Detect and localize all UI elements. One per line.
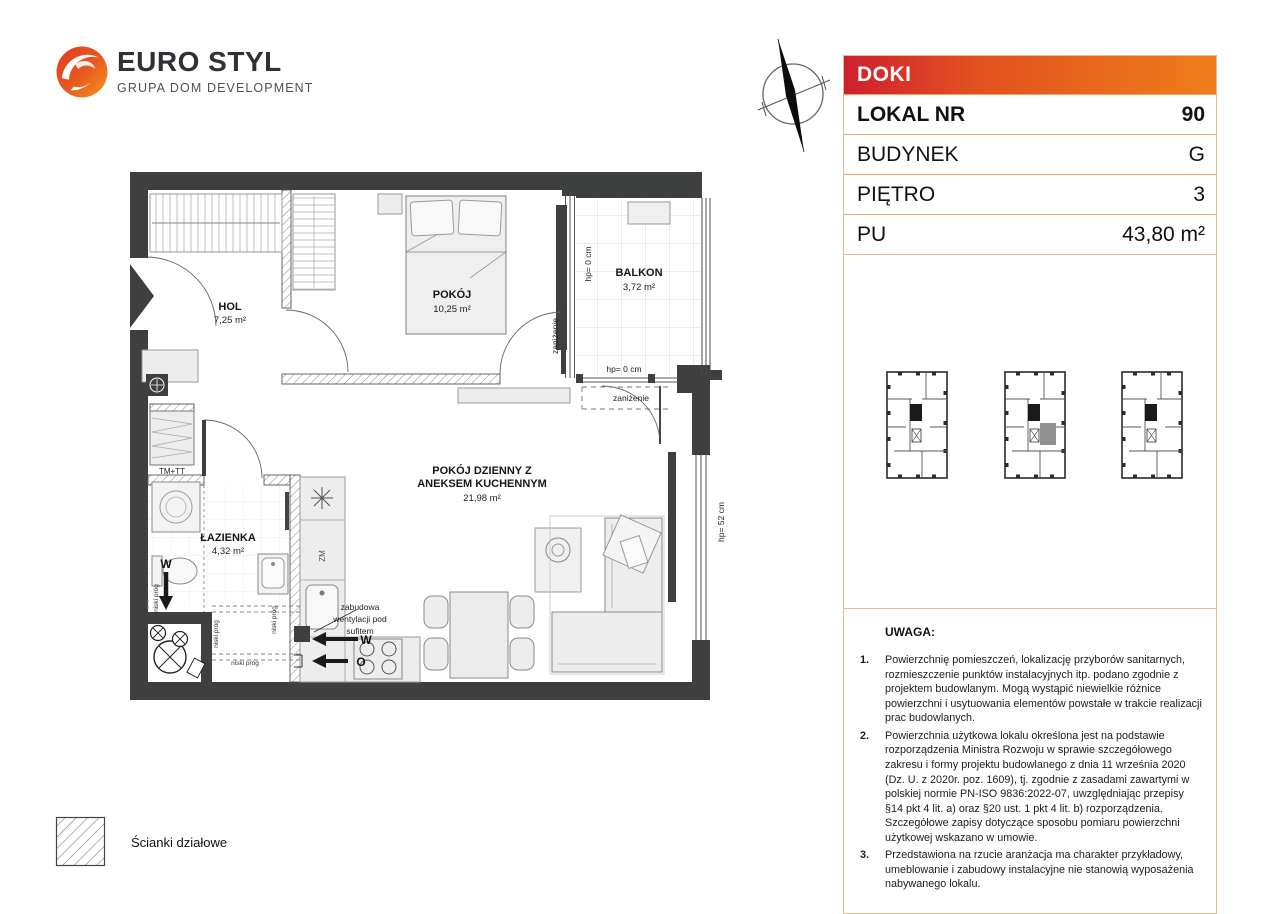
row-value: 3 (1193, 183, 1205, 207)
row-value: G (1189, 143, 1205, 167)
eurostyl-logo-icon (55, 44, 109, 100)
room-area-lazienka: 4,32 m² (212, 546, 244, 557)
niski-prog-label: niski próg (231, 660, 259, 667)
hp52-label: hp= 52 cm (716, 502, 726, 542)
zanizenie-vertical-label: zaniżenie (550, 318, 560, 354)
nightstand (378, 194, 402, 214)
hol-wardrobe (150, 194, 282, 252)
niski-prog-label: niski próg (153, 584, 160, 612)
radiator (668, 452, 676, 602)
pokoj-closet (293, 194, 335, 290)
shaft-tm-tt (150, 411, 194, 465)
note-text: Powierzchnia użytkowa lokalu określona j… (885, 730, 1189, 844)
sink-symbol-icon (311, 487, 333, 509)
vent-note-line2: wentylacji pod (332, 614, 387, 624)
partition-wall-swatch-icon (55, 816, 107, 868)
hp0-vertical-label: hp= 0 cm (583, 246, 593, 281)
room-label-living-1: POKÓJ DZIENNY Z (432, 464, 532, 477)
w-label: W (360, 633, 372, 647)
project-name-header: DOKI (844, 56, 1216, 94)
entrance-cabinet (142, 350, 198, 396)
wall-mirror (285, 492, 289, 530)
notes-title: UWAGA: (885, 625, 1202, 639)
room-area-pokoj: 10,25 m² (433, 304, 471, 315)
table-row-budynek: BUDYNEK G (844, 134, 1216, 174)
room-label-hol: HOL (218, 301, 242, 313)
location-plans-section (843, 254, 1217, 608)
o-label: O (356, 655, 365, 669)
note-item: 2. Powierzchnia użytkowa lokalu określon… (859, 729, 1202, 846)
room-label-pokoj: POKÓJ (433, 288, 472, 301)
note-text: Powierzchnię pomieszczeń, lokalizację pr… (885, 654, 1202, 724)
row-value: 43,80 m² (1122, 223, 1205, 247)
washing-machine (152, 482, 200, 532)
room-area-hol: 7,25 m² (214, 315, 246, 326)
vent-box (294, 626, 310, 642)
note-number: 3. (860, 848, 869, 863)
mini-floorplan (1004, 371, 1066, 479)
table-row-pu: PU 43,80 m² (844, 214, 1216, 254)
notes-list: 1. Powierzchnię pomieszczeń, lokalizację… (859, 653, 1202, 892)
row-label: LOKAL NR (857, 103, 965, 127)
niski-prog-label: niski próg (213, 620, 220, 648)
row-label: PU (857, 223, 886, 247)
note-text: Przedstawiona na rzucie aranżacja ma cha… (885, 849, 1194, 890)
room-area-balkon: 3,72 m² (623, 282, 655, 293)
vent-note-line1: zabudowa (341, 602, 380, 612)
dining-set (424, 592, 534, 678)
legend-label: Ścianki działowe (131, 835, 227, 850)
note-number: 1. (860, 653, 869, 668)
w-label: W (160, 557, 172, 571)
info-panel: DOKI LOKAL NR 90 BUDYNEK G PIĘTRO 3 PU 4… (843, 55, 1217, 914)
balcony-box (628, 202, 670, 224)
logo-subtitle: GRUPA DOM DEVELOPMENT (117, 81, 314, 95)
living-window (668, 448, 710, 647)
highlighted-unit (1040, 423, 1056, 445)
entrance-arrow-icon (130, 264, 154, 328)
table-row-lokal: LOKAL NR 90 (844, 94, 1216, 134)
zm-label: ZM (318, 550, 327, 562)
kitchen-counter (300, 477, 420, 682)
legend: Ścianki działowe (55, 816, 227, 868)
note-item: 3. Przedstawiona na rzucie aranżacja ma … (859, 848, 1202, 892)
notes-section: UWAGA: 1. Powierzchnię pomieszczeń, loka… (843, 608, 1217, 914)
mini-floorplan (1121, 371, 1183, 479)
row-label: BUDYNEK (857, 143, 959, 167)
room-area-living: 21,98 m² (463, 493, 501, 504)
unit-info-table: DOKI LOKAL NR 90 BUDYNEK G PIĘTRO 3 PU 4… (843, 55, 1217, 254)
eurostyl-logo: EURO STYL GRUPA DOM DEVELOPMENT (55, 44, 314, 100)
north-arrow-icon (748, 30, 848, 158)
plant-table (535, 528, 581, 592)
zanizenie-horizontal-label: zaniżenie (613, 393, 649, 403)
mini-floorplan (886, 371, 948, 479)
note-number: 2. (860, 729, 869, 744)
row-value: 90 (1182, 103, 1205, 127)
floorplan-sheet: { "logo": { "title": "EURO STYL", "subti… (0, 0, 1273, 900)
niski-prog-label: niski próg (271, 606, 278, 634)
floor-plan: HOL 7,25 m² POKÓJ 10,25 m² BALKON 3,72 m… (118, 160, 738, 720)
room-label-living-2: ANEKSEM KUCHENNYM (417, 478, 547, 490)
room-label-balkon: BALKON (615, 267, 662, 279)
sideboard (458, 388, 570, 403)
hp0-horizontal-label: hp= 0 cm (606, 364, 641, 374)
tm-tt-label: TM+TT (159, 467, 185, 476)
note-item: 1. Powierzchnię pomieszczeń, lokalizację… (859, 653, 1202, 726)
table-row-pietro: PIĘTRO 3 (844, 174, 1216, 214)
room-label-lazienka: ŁAZIENKA (200, 532, 256, 544)
row-label: PIĘTRO (857, 183, 935, 207)
logo-title: EURO STYL (117, 48, 314, 76)
